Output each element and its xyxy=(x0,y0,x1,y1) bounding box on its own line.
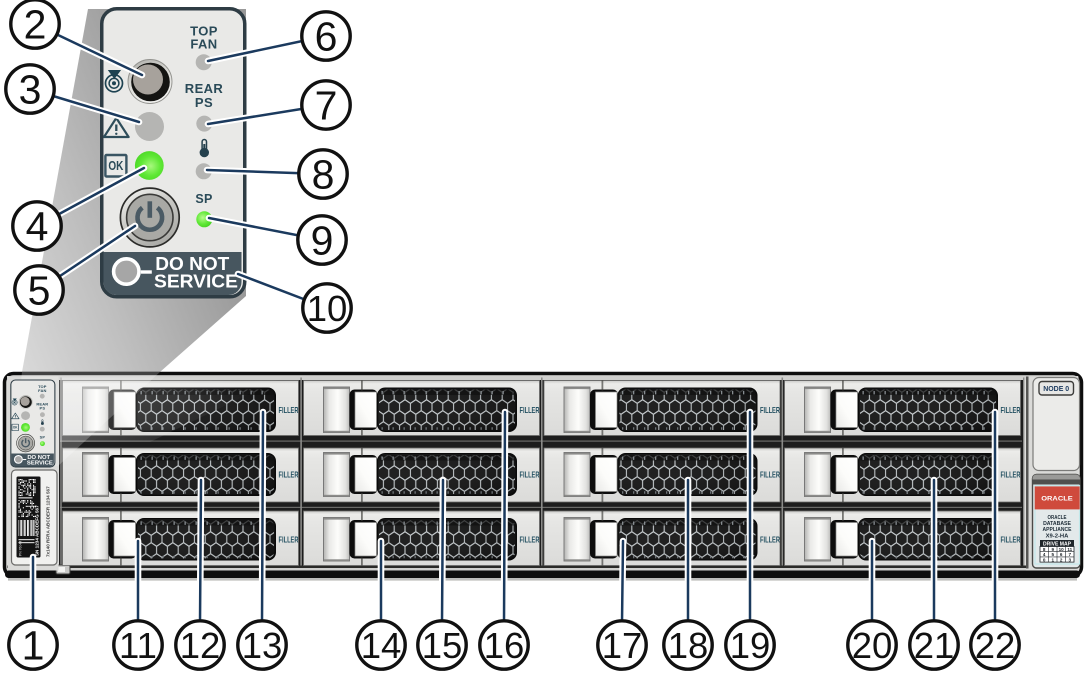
svg-text:6: 6 xyxy=(315,13,338,59)
svg-text:OK: OK xyxy=(108,159,123,173)
svg-text:FILLER: FILLER xyxy=(1001,534,1021,544)
svg-text:1: 1 xyxy=(22,622,45,668)
svg-text:PS: PS xyxy=(195,95,213,110)
svg-text:15: 15 xyxy=(422,625,463,666)
svg-text:14: 14 xyxy=(361,625,402,666)
svg-text:SN 1234 ABCDEFG 567: SN 1234 ABCDEFG 567 xyxy=(35,505,40,556)
svg-text:8: 8 xyxy=(312,151,335,197)
svg-text:18: 18 xyxy=(668,625,709,666)
svg-text:10: 10 xyxy=(307,288,348,329)
svg-text:PS: PS xyxy=(40,406,46,411)
svg-text:SERVICE: SERVICE xyxy=(27,460,53,466)
svg-text:19: 19 xyxy=(730,625,771,666)
svg-text:FILLER: FILLER xyxy=(520,405,540,415)
svg-text:3: 3 xyxy=(19,66,42,112)
svg-text:2: 2 xyxy=(1060,557,1063,562)
svg-text:7: 7 xyxy=(315,82,338,128)
svg-text:FILLER: FILLER xyxy=(760,534,780,544)
svg-text:22: 22 xyxy=(975,625,1016,666)
svg-text:5: 5 xyxy=(28,267,51,313)
svg-text:NODE 0: NODE 0 xyxy=(1043,384,1069,393)
svg-text:17: 17 xyxy=(602,625,643,666)
svg-text:4: 4 xyxy=(26,203,49,249)
svg-text:FILLER: FILLER xyxy=(760,405,780,415)
svg-text:SERVICE: SERVICE xyxy=(154,271,238,292)
svg-text:FILLER: FILLER xyxy=(279,470,299,480)
svg-text:9: 9 xyxy=(311,217,334,263)
svg-text:OK: OK xyxy=(13,426,18,430)
svg-text:FILLER: FILLER xyxy=(520,470,540,480)
svg-text:SP: SP xyxy=(195,192,212,206)
svg-text:FAN: FAN xyxy=(38,388,46,393)
svg-text:FILLER: FILLER xyxy=(1001,470,1021,480)
svg-text:3: 3 xyxy=(1069,557,1072,562)
svg-text:20: 20 xyxy=(852,625,893,666)
svg-text:FILLER: FILLER xyxy=(1001,405,1021,415)
svg-text:7x140 RFRA ABCDEFR 1234 567: 7x140 RFRA ABCDEFR 1234 567 xyxy=(46,486,51,557)
svg-text:FAN: FAN xyxy=(190,36,217,51)
svg-text:FILLER: FILLER xyxy=(279,534,299,544)
svg-text:REAR: REAR xyxy=(185,81,224,96)
svg-text:13: 13 xyxy=(242,625,283,666)
svg-text:X9-2-HA: X9-2-HA xyxy=(1046,533,1069,539)
svg-text:16: 16 xyxy=(484,625,525,666)
svg-text:FILLER: FILLER xyxy=(279,405,299,415)
svg-text:DATABASE: DATABASE xyxy=(1043,521,1071,527)
svg-text:FILLER: FILLER xyxy=(760,470,780,480)
svg-text:ORACLE: ORACLE xyxy=(1048,515,1067,521)
svg-text:11: 11 xyxy=(119,625,157,666)
svg-text:PN 76044: PN 76044 xyxy=(19,541,23,556)
svg-text:21: 21 xyxy=(914,625,955,666)
svg-text:0: 0 xyxy=(1043,557,1046,562)
svg-text:1: 1 xyxy=(1052,557,1055,562)
svg-text:12: 12 xyxy=(180,625,221,666)
svg-text:ORACLE: ORACLE xyxy=(1041,496,1073,502)
svg-text:2: 2 xyxy=(24,1,47,47)
svg-text:APPLIANCE: APPLIANCE xyxy=(1043,527,1072,533)
svg-text:FILLER: FILLER xyxy=(520,534,540,544)
svg-text:SP: SP xyxy=(40,436,46,440)
